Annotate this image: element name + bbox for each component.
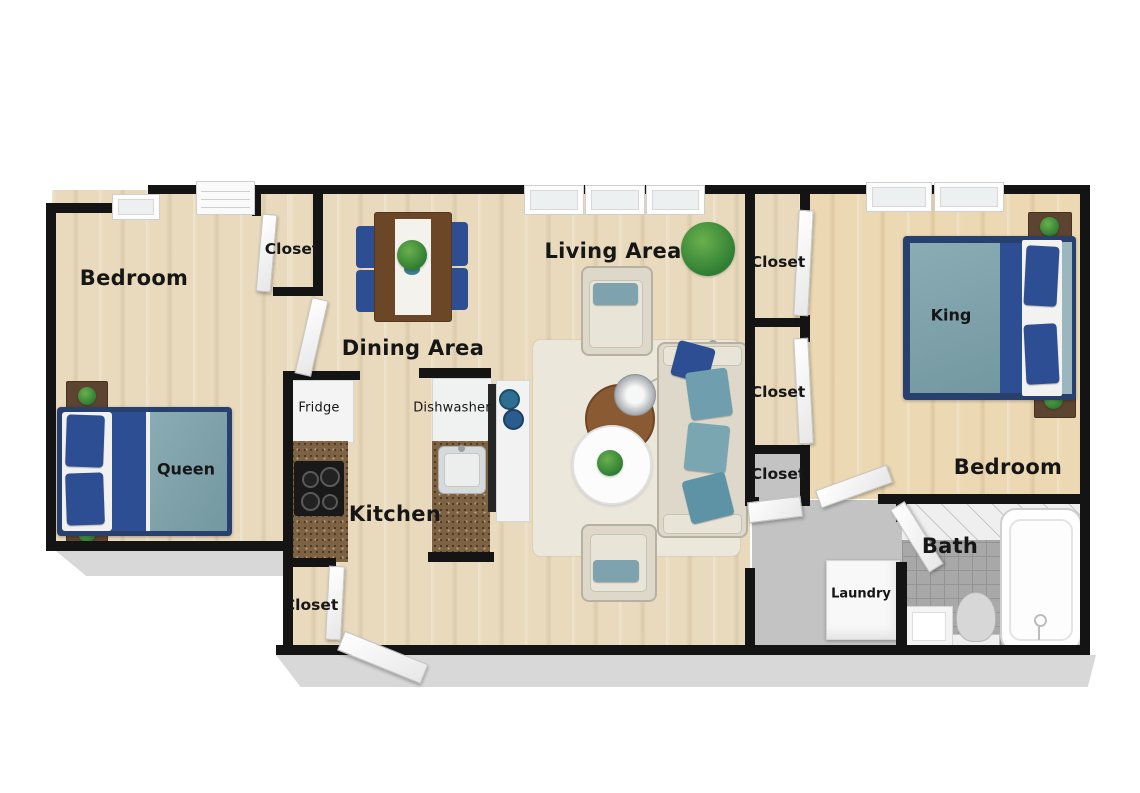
armchair <box>581 266 653 356</box>
wall <box>745 445 810 454</box>
bathroom-sink <box>905 606 953 648</box>
plant-icon <box>397 240 427 270</box>
bowl-icon <box>503 409 524 430</box>
room-label-living: Living Area <box>544 239 681 263</box>
wall <box>1080 185 1090 655</box>
kitchen-sink <box>438 446 486 494</box>
king-bed-fold <box>1000 243 1022 393</box>
wall <box>273 287 323 296</box>
closet-label-top-left: Closet <box>265 240 320 258</box>
bed-pillow <box>65 414 105 467</box>
wall <box>46 203 56 551</box>
bowl-icon <box>499 389 520 410</box>
room-label-dining: Dining Area <box>342 336 484 360</box>
window <box>866 182 932 212</box>
room-label-kitchen: Kitchen <box>349 502 441 526</box>
burner-icon <box>301 492 320 511</box>
floor-plan: Bedroom Closet Queen Dining Area Fridge … <box>0 0 1140 793</box>
window <box>585 185 645 215</box>
tub-faucet-icon <box>1034 614 1047 627</box>
king-bed <box>903 236 1076 400</box>
arc-lamp-shade <box>614 374 656 416</box>
window <box>646 185 705 215</box>
bed-size-label-king: King <box>931 306 972 325</box>
wall <box>745 318 810 327</box>
closet-label-bottom-left: Closet <box>284 596 339 614</box>
faucet-icon <box>458 445 465 452</box>
toilet <box>956 592 996 642</box>
closet-label-1: Closet <box>751 253 806 271</box>
plant-icon <box>1040 217 1059 236</box>
sink-basin <box>444 453 480 487</box>
closet-shelf <box>196 181 255 215</box>
laundry-label: Laundry <box>831 587 891 602</box>
queen-bed-fold <box>112 412 148 531</box>
king-bed-headboard <box>1062 242 1072 394</box>
dishwasher-label: Dishwasher <box>413 401 491 416</box>
burner-icon <box>320 467 340 487</box>
wall <box>46 541 293 551</box>
sink-basin <box>912 612 946 641</box>
closet-label-2: Closet <box>751 383 806 401</box>
bed-pillow <box>1023 245 1059 307</box>
sofa-pillow <box>684 422 731 474</box>
fridge-label: Fridge <box>298 401 339 416</box>
wall <box>419 368 491 378</box>
bed-size-label-queen: Queen <box>157 460 215 479</box>
left-block-apron <box>56 551 288 576</box>
window <box>934 182 1004 212</box>
tub-faucet-stem <box>1038 626 1040 640</box>
bed-pillow <box>1023 323 1059 385</box>
wall <box>896 562 907 645</box>
armchair <box>581 524 657 602</box>
window <box>112 194 160 220</box>
stove-cooktop <box>294 461 344 516</box>
room-label-bedroom-right: Bedroom <box>954 455 1062 479</box>
room-label-bath: Bath <box>922 534 978 558</box>
armchair-pillow <box>593 560 639 582</box>
burner-icon <box>302 471 319 488</box>
closet-label-3: Closet <box>751 465 806 483</box>
room-label-bedroom-left: Bedroom <box>80 266 188 290</box>
sofa-pillow <box>685 367 733 420</box>
wall <box>745 568 755 655</box>
window <box>524 185 584 215</box>
plant-icon <box>681 222 735 276</box>
wall <box>745 185 755 505</box>
armchair-pillow <box>593 283 638 305</box>
wall <box>428 552 494 562</box>
burner-icon <box>322 494 338 510</box>
plant-icon <box>597 450 623 476</box>
wall <box>878 494 1090 504</box>
plant-icon <box>78 387 96 405</box>
bed-pillow <box>65 472 105 525</box>
bathtub <box>1000 508 1082 652</box>
